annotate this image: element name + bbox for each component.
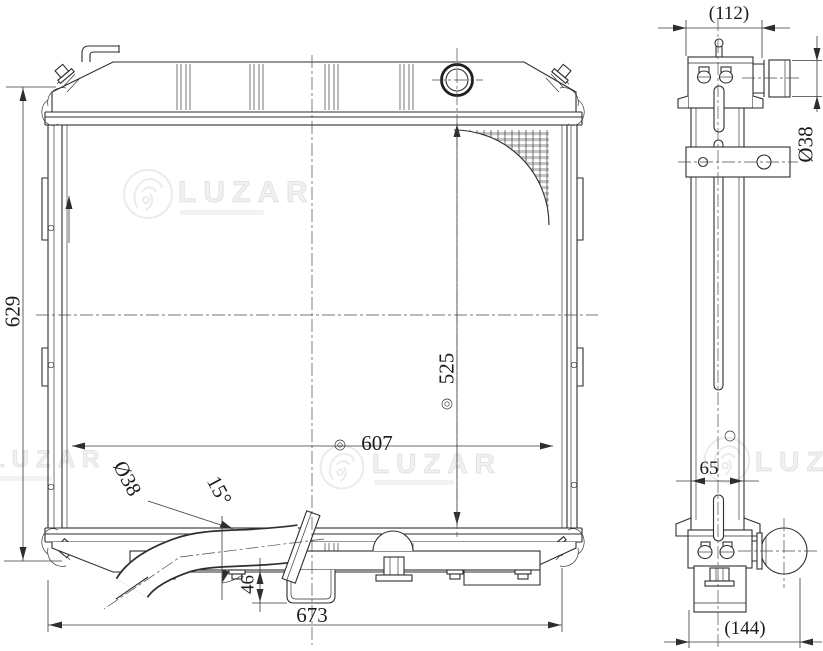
side-bottom-bracket [694, 566, 746, 612]
hole-marker-icon [335, 440, 345, 450]
hole-marker-icon [442, 399, 452, 409]
dimension-112 [658, 20, 790, 58]
dimension-inlet-diameter [792, 36, 822, 112]
dim-label-inlet-diameter: Ø38 [796, 125, 817, 165]
dim-label-core-depth: 65 [696, 459, 722, 478]
dim-label-hole-span-v: 525 [437, 351, 458, 387]
side-bottom-tank [676, 495, 807, 612]
inlet-pipe [753, 60, 790, 97]
technical-drawing-canvas [0, 0, 823, 651]
side-view [658, 18, 822, 650]
right-side-channel [571, 125, 583, 528]
left-side-channel [42, 125, 54, 528]
dim-label-hole-span-h: 607 [352, 433, 402, 454]
dim-label-top-depth-ref: (112) [700, 4, 758, 23]
dimension-607 [72, 440, 553, 450]
side-top-tank [678, 39, 790, 132]
dim-label-width: 673 [290, 605, 334, 626]
radiator-technical-drawing: LUZAR LUZAR LUZAR LUZAR [0, 0, 823, 651]
overflow-pipe [82, 45, 119, 62]
dim-label-bottom-depth-ref: (144) [717, 619, 773, 638]
dim-label-height: 629 [3, 294, 24, 330]
bottom-tank [42, 528, 584, 603]
dim-label-bracket-depth: 46 [239, 573, 258, 597]
fins-cutaway [450, 128, 555, 238]
dimension-525 [442, 123, 461, 526]
front-view [4, 45, 598, 645]
